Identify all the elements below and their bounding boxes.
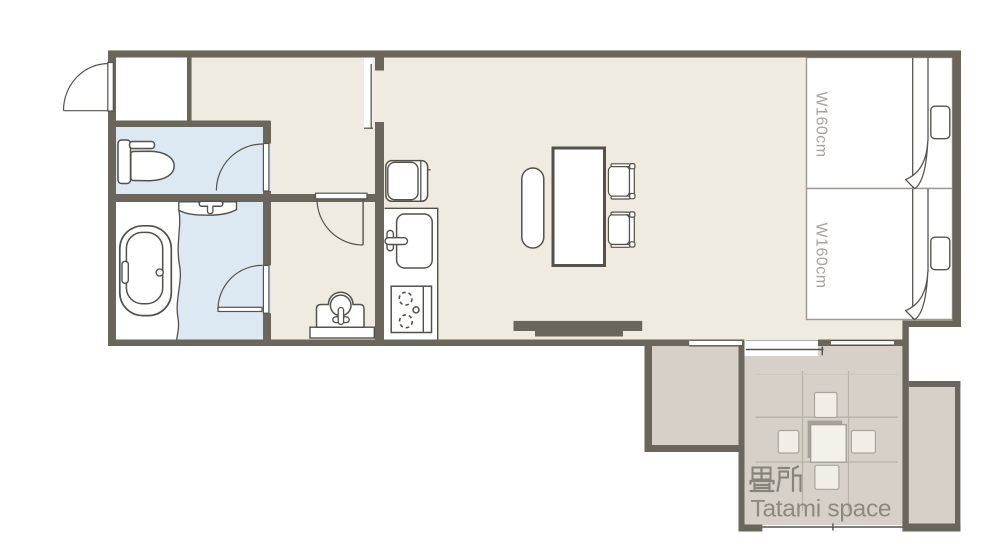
svg-text:W160cm: W160cm [813,222,830,288]
svg-text:Tatami space: Tatami space [751,495,892,522]
svg-text:W160cm: W160cm [813,91,830,157]
